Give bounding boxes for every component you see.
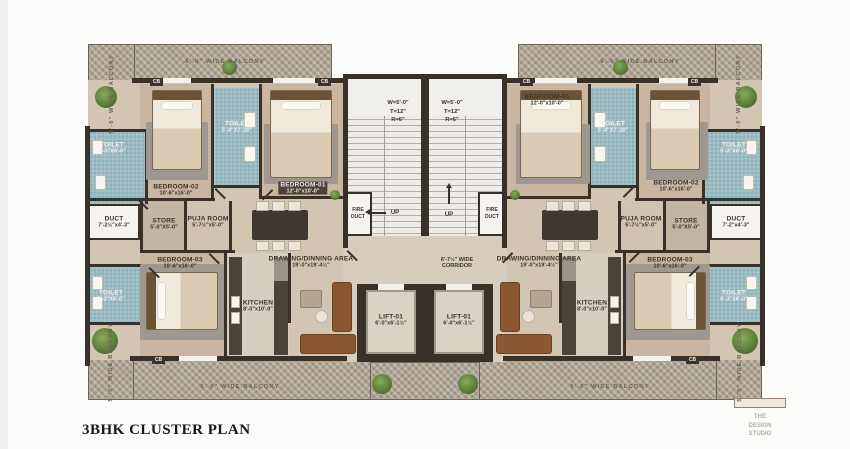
label-puja-left: PUJA ROOM 5'-7½"x5'-0" [188,216,229,229]
cb-chip: CB [152,356,165,364]
label-store-left: STORE 5'-0"X5'-0" [150,218,177,231]
cb-chip: CB [520,78,533,86]
plant-icon [458,374,478,394]
label-up-left: UP [391,210,399,216]
wall [702,264,762,267]
wall [88,129,148,132]
cb-chip: CB [688,78,701,86]
coffee-table-icon [522,310,535,323]
cb-label: CB [691,79,698,85]
wall [343,74,507,79]
wall [214,185,260,188]
wall [211,84,214,198]
label-toilet-upper-left: TOILET 5'-3"X6'-0" [98,142,125,155]
chair-icon [256,201,269,211]
up-arrow-icon [446,183,452,188]
balcony-deck [478,358,720,400]
window [658,78,692,83]
coffee-table-icon [315,310,328,323]
label-corridor: 6'-7½" WIDE CORRIDOR [441,257,473,269]
armchair-icon [530,290,552,308]
label-balcony-top-right: 6'-0" WIDE BALCONY [600,59,679,65]
stair-landing-right [427,78,503,116]
plant-icon [510,190,520,200]
label-puja-right: PUJA ROOM 5'-7½"x5'-0" [621,216,662,229]
sink-icon [610,296,619,308]
bed-icon [152,90,202,170]
room-toilet-attached-left [214,88,260,185]
cb-label: CB [689,357,696,363]
label-balcony-side-left-upper: 5'-0" WIDE BALCONY [109,54,115,133]
label-balcony-bottom-left: 6'-0" WIDE BALCONY [200,384,279,390]
cb-label: CB [153,79,160,85]
label-toilet-lower-left: TOILET 5'-3"X6'-0" [97,290,124,303]
label-bedroom-01-left: BEDROOM-01 12'-0"x10'-0" [278,182,327,195]
wall [88,322,148,325]
label-balcony-side-right-upper: 5'-0" WIDE BALCONY [736,54,742,133]
bed-icon [634,272,706,330]
wall [702,129,762,132]
wall [140,201,143,251]
label-toilet-attached-right: TOILET 5'-4"X7'-10" [598,121,628,134]
lift-door [446,284,472,290]
cb-chip: CB [686,356,699,364]
sofa-icon [332,282,352,332]
wall [229,201,232,253]
sofa-icon [496,334,552,354]
chair-icon [562,201,575,211]
cb-label: CB [523,79,530,85]
wall [590,185,636,188]
label-drawing-left: DRAWING/DINNING AREA 19'-0"x19'-4½" [269,256,354,269]
balcony-deck [130,358,372,400]
label-duct-left: DUCT 7'-2½"x4'-3" [98,216,129,229]
stair-flight-divider [465,116,466,236]
wall [635,198,765,201]
bed-icon [650,90,700,170]
label-bedroom-03-left: BEDROOM-03 10'-6"x16'-0" [157,257,202,270]
plant-icon [372,374,392,394]
chair-icon [562,241,575,251]
chair-icon [272,241,285,251]
dining-table-icon [252,210,308,240]
label-bedroom-02-left: BEDROOM-02 10'-6"x16'-0" [153,184,198,197]
label-bedroom-01-right: BEDROOM-01 12'-0"x10'-0" [524,94,569,107]
label-drawing-right: DRAWING/DINNING AREA 19'-0"x19'-4½" [497,256,582,269]
toilet-fixture-icon [92,276,103,290]
chair-icon [546,201,559,211]
wall [140,250,235,253]
chair-icon [546,241,559,251]
label-toilet-lower-right: TOILET 5'-3"X6'-0" [720,290,747,303]
cb-chip: CB [318,78,331,86]
label-lift-left: LIFT-01 6'-0"x6'-1½" [375,314,406,327]
wall [421,78,429,236]
toilet-fixture-icon [743,175,754,190]
wall [707,201,710,251]
chair-icon [256,241,269,251]
stair-landing-left [347,78,423,116]
wall [85,126,90,366]
cb-label: CB [155,357,162,363]
label-kitchen-left: KITCHEN 8'-0"x10'-0" [243,300,273,313]
label-bedroom-03-right: BEDROOM-03 10'-6"x16'-0" [647,257,692,270]
toilet-fixture-icon [95,175,106,190]
label-toilet-upper-right: TOILET 5'-3"X6'-0" [720,142,747,155]
page-title: 3BHK CLUSTER PLAN [82,422,251,439]
chair-icon [578,201,591,211]
sofa-icon [300,334,356,354]
watermark: THE DESIGN STUDIO [735,413,785,439]
up-arrow-icon [365,209,370,215]
label-fire-duct-left: FIRE DUCT [351,207,365,221]
label-fire-duct-right: FIRE DUCT [485,207,499,221]
label-toilet-attached-left: TOILET 5'-4"X7'-10" [222,121,252,134]
wall [702,322,762,325]
armchair-icon [300,290,322,308]
page-edge-right [0,0,8,449]
chair-icon [272,201,285,211]
wall [85,198,215,201]
label-balcony-side-left-lower: 5'-0" WIDE BALCONY [108,322,114,401]
label-balcony-top-left: 6'-0" WIDE BALCONY [185,59,264,65]
wall [224,253,227,358]
toilet-fixture-icon [244,146,256,162]
sink-icon [231,296,240,308]
label-stair-spec-left: W=5'-0" T=12" R=6" [387,99,408,125]
dining-table-icon [542,210,598,240]
chair-icon [578,241,591,251]
window [158,78,192,83]
bed-icon [270,90,332,178]
wall [259,84,262,199]
window [534,78,578,83]
up-arrow-icon [448,188,450,204]
sink-icon [231,312,240,324]
cb-label: CB [321,79,328,85]
wall [636,84,639,198]
plant-icon [92,328,118,354]
label-stair-spec-right: W=5'-0" T=12" R=6" [441,99,462,125]
label-duct-right: DUCT 7'-2"x4'-3" [723,216,750,229]
label-balcony-bottom-right: 6'-0" WIDE BALCONY [570,384,649,390]
room-toilet-attached-right [590,88,636,185]
floor-plan: CB CB CB CB CB CB BEDROOM-02 10'-6"x16'-… [0,0,850,449]
up-arrow-icon [370,212,386,214]
label-up-right: UP [445,212,453,218]
wall [88,264,148,267]
toilet-fixture-icon [746,276,757,290]
plant-icon [330,190,340,200]
label-store-right: STORE 5'-0"X5'-0" [672,218,699,231]
stair-flight-divider [384,116,385,236]
label-kitchen-right: KITCHEN 8'-0"x10'-0" [577,300,607,313]
bed-icon [146,272,218,330]
sink-icon [610,312,619,324]
chair-icon [288,201,301,211]
window [632,356,672,361]
window [178,356,218,361]
label-lift-right: LIFT-01 6'-0"x6'-1½" [443,314,474,327]
wall [760,126,765,366]
wall [663,201,666,251]
label-bedroom-02-right: BEDROOM-02 10'-6"x16'-0" [653,180,698,193]
chair-icon [288,241,301,251]
label-balcony-side-right-lower: 5'-0" WIDE BALCONY [737,322,743,401]
window [272,78,316,83]
sofa-icon [500,282,520,332]
toilet-fixture-icon [594,146,606,162]
plant-icon [732,328,758,354]
lift-door [378,284,404,290]
cb-chip: CB [150,78,163,86]
